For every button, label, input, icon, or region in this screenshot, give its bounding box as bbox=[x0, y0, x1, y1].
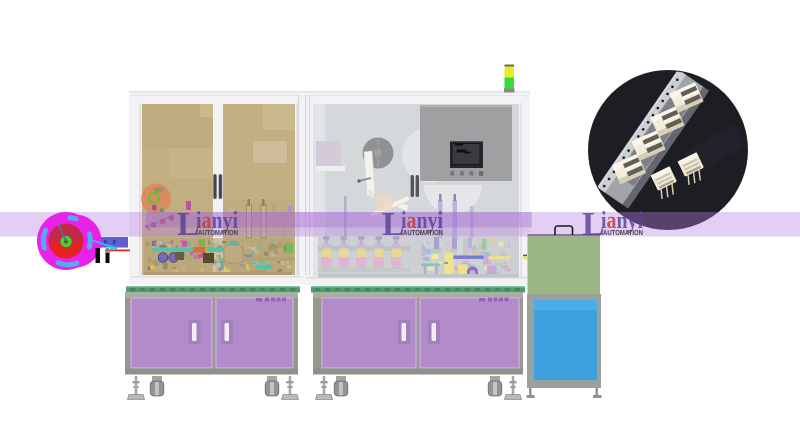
svg-text:AUTOMATION: AUTOMATION bbox=[403, 228, 443, 237]
svg-text:AUTOMATION: AUTOMATION bbox=[198, 228, 238, 237]
svg-text:AUTOMATION: AUTOMATION bbox=[603, 228, 643, 237]
